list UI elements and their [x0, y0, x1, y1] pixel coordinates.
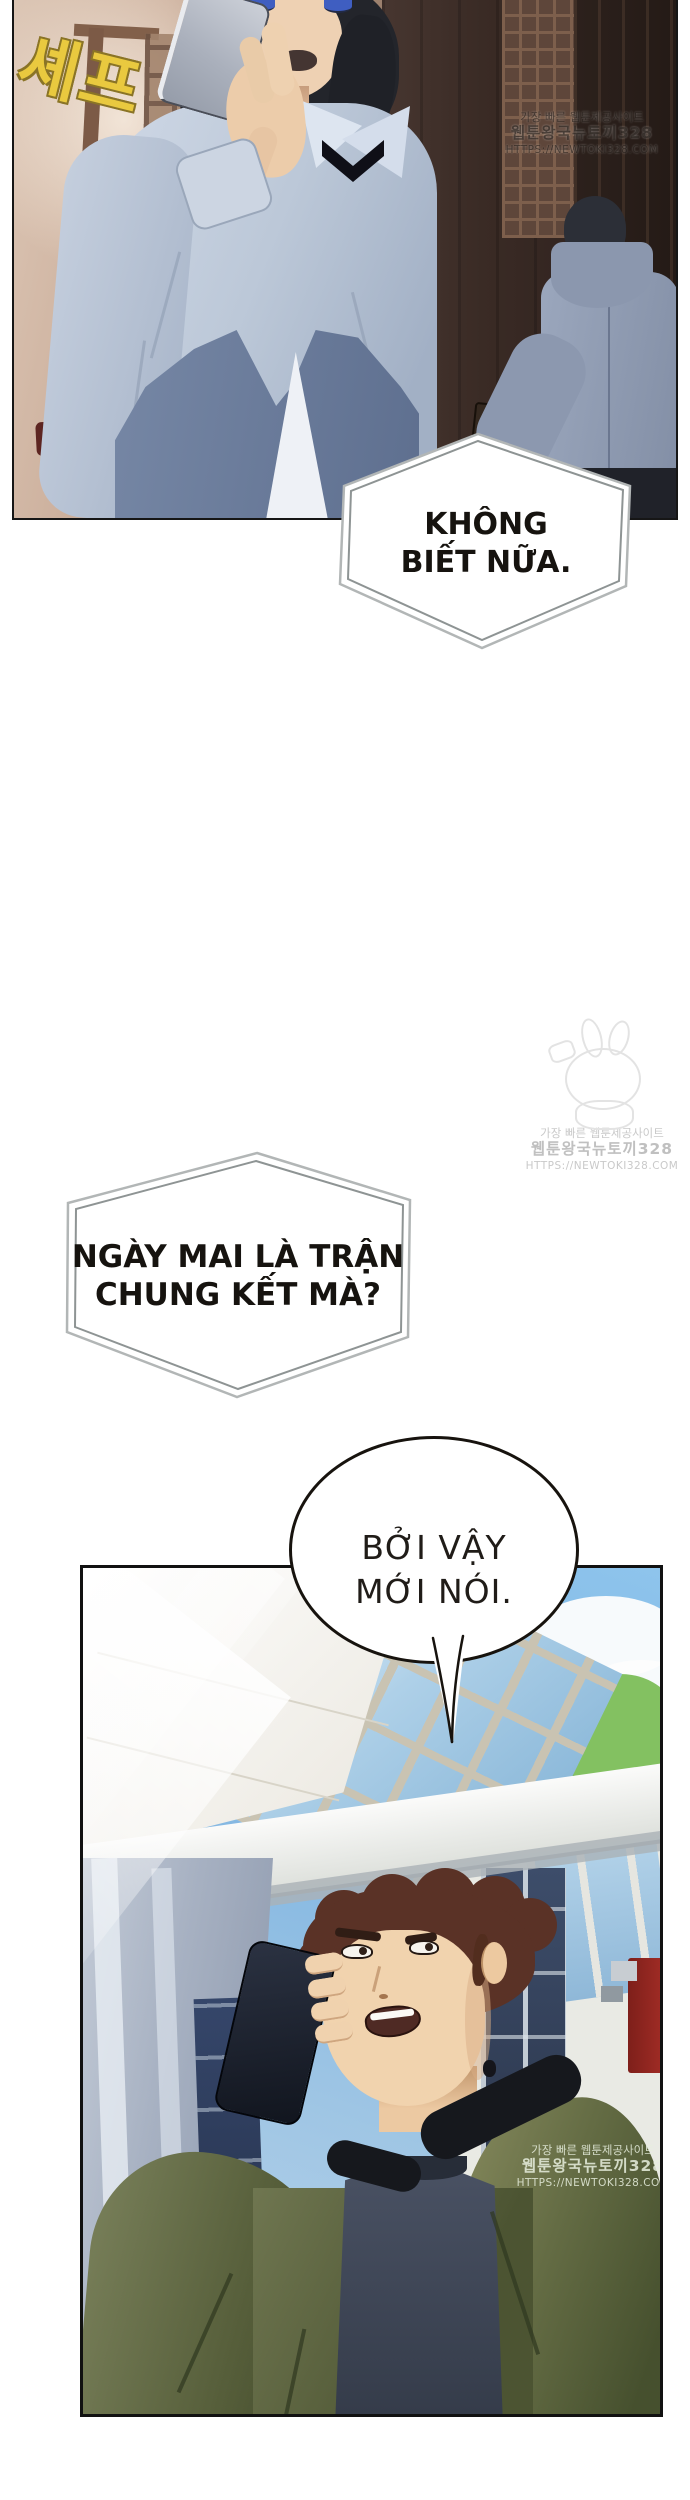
- speech-bubble-text: KHÔNG BIẾT NỮA.: [330, 506, 642, 582]
- mascot-body: [575, 1100, 634, 1130]
- woman-eye: [324, 0, 352, 13]
- eye-pupil: [359, 1947, 367, 1955]
- watermark-line: 웹툰왕국뉴토끼328: [512, 1140, 690, 1159]
- panel-street-scene: 가장 빠른 웹툰제공사이트 웹툰왕국뉴토끼328 HTTPS://NEWTOKI…: [80, 1565, 663, 2417]
- watermark-line: 가장 빠른 웹툰제공사이트: [484, 110, 678, 124]
- speech-bubble-text: BỞI VẬY MỚI NÓI.: [289, 1526, 579, 1614]
- watermark-line: 웹툰왕국뉴토끼328: [484, 124, 678, 143]
- bubble-line: BIẾT NỮA.: [330, 544, 642, 582]
- teeth: [370, 2008, 415, 2020]
- site-watermark-middle: 가장 빠른 웹툰제공사이트 웹툰왕국뉴토끼328 HTTPS://NEWTOKI…: [512, 1018, 690, 1173]
- bubble-line: NGÀY MAI LÀ TRẬN: [55, 1238, 421, 1276]
- man-eye: [341, 1944, 373, 1959]
- man-nostril: [379, 1994, 388, 1999]
- watermark-url: HTTPS://NEWTOKI328.COM: [511, 2177, 663, 2190]
- eye-pupil: [425, 1943, 433, 1951]
- bubble-line: CHUNG KẾT MÀ?: [55, 1276, 421, 1314]
- comic-page: 셰프: [0, 0, 690, 2500]
- watermark-url: HTTPS://NEWTOKI328.COM: [512, 1160, 690, 1173]
- rabbit-mascot-watermark: [527, 1018, 677, 1126]
- machine-top-box: [611, 1961, 637, 1981]
- man-eye: [409, 1940, 439, 1955]
- man-ear: [481, 1942, 507, 1984]
- bubble-line: KHÔNG: [330, 506, 642, 544]
- watermark-url: HTTPS://NEWTOKI328.COM: [484, 144, 678, 157]
- bubble-line: MỚI NÓI.: [289, 1570, 579, 1614]
- bubble-line: BỞI VẬY: [289, 1526, 579, 1570]
- dark-tshirt: [335, 2156, 503, 2417]
- site-watermark-restaurant: 가장 빠른 웹툰제공사이트 웹툰왕국뉴토끼328 HTTPS://NEWTOKI…: [484, 110, 678, 157]
- speech-bubble-tail: [420, 1630, 480, 1750]
- jaw-shadow: [483, 2060, 496, 2077]
- gray-wall-sign: [601, 1986, 623, 2002]
- watermark-line: 웹툰왕국뉴토끼328: [511, 2157, 663, 2176]
- speech-bubble-text: NGÀY MAI LÀ TRẬN CHUNG KẾT MÀ?: [55, 1238, 421, 1314]
- site-watermark-street: 가장 빠른 웹툰제공사이트 웹툰왕국뉴토끼328 HTTPS://NEWTOKI…: [511, 2143, 663, 2190]
- watermark-line: 가장 빠른 웹툰제공사이트: [511, 2143, 663, 2157]
